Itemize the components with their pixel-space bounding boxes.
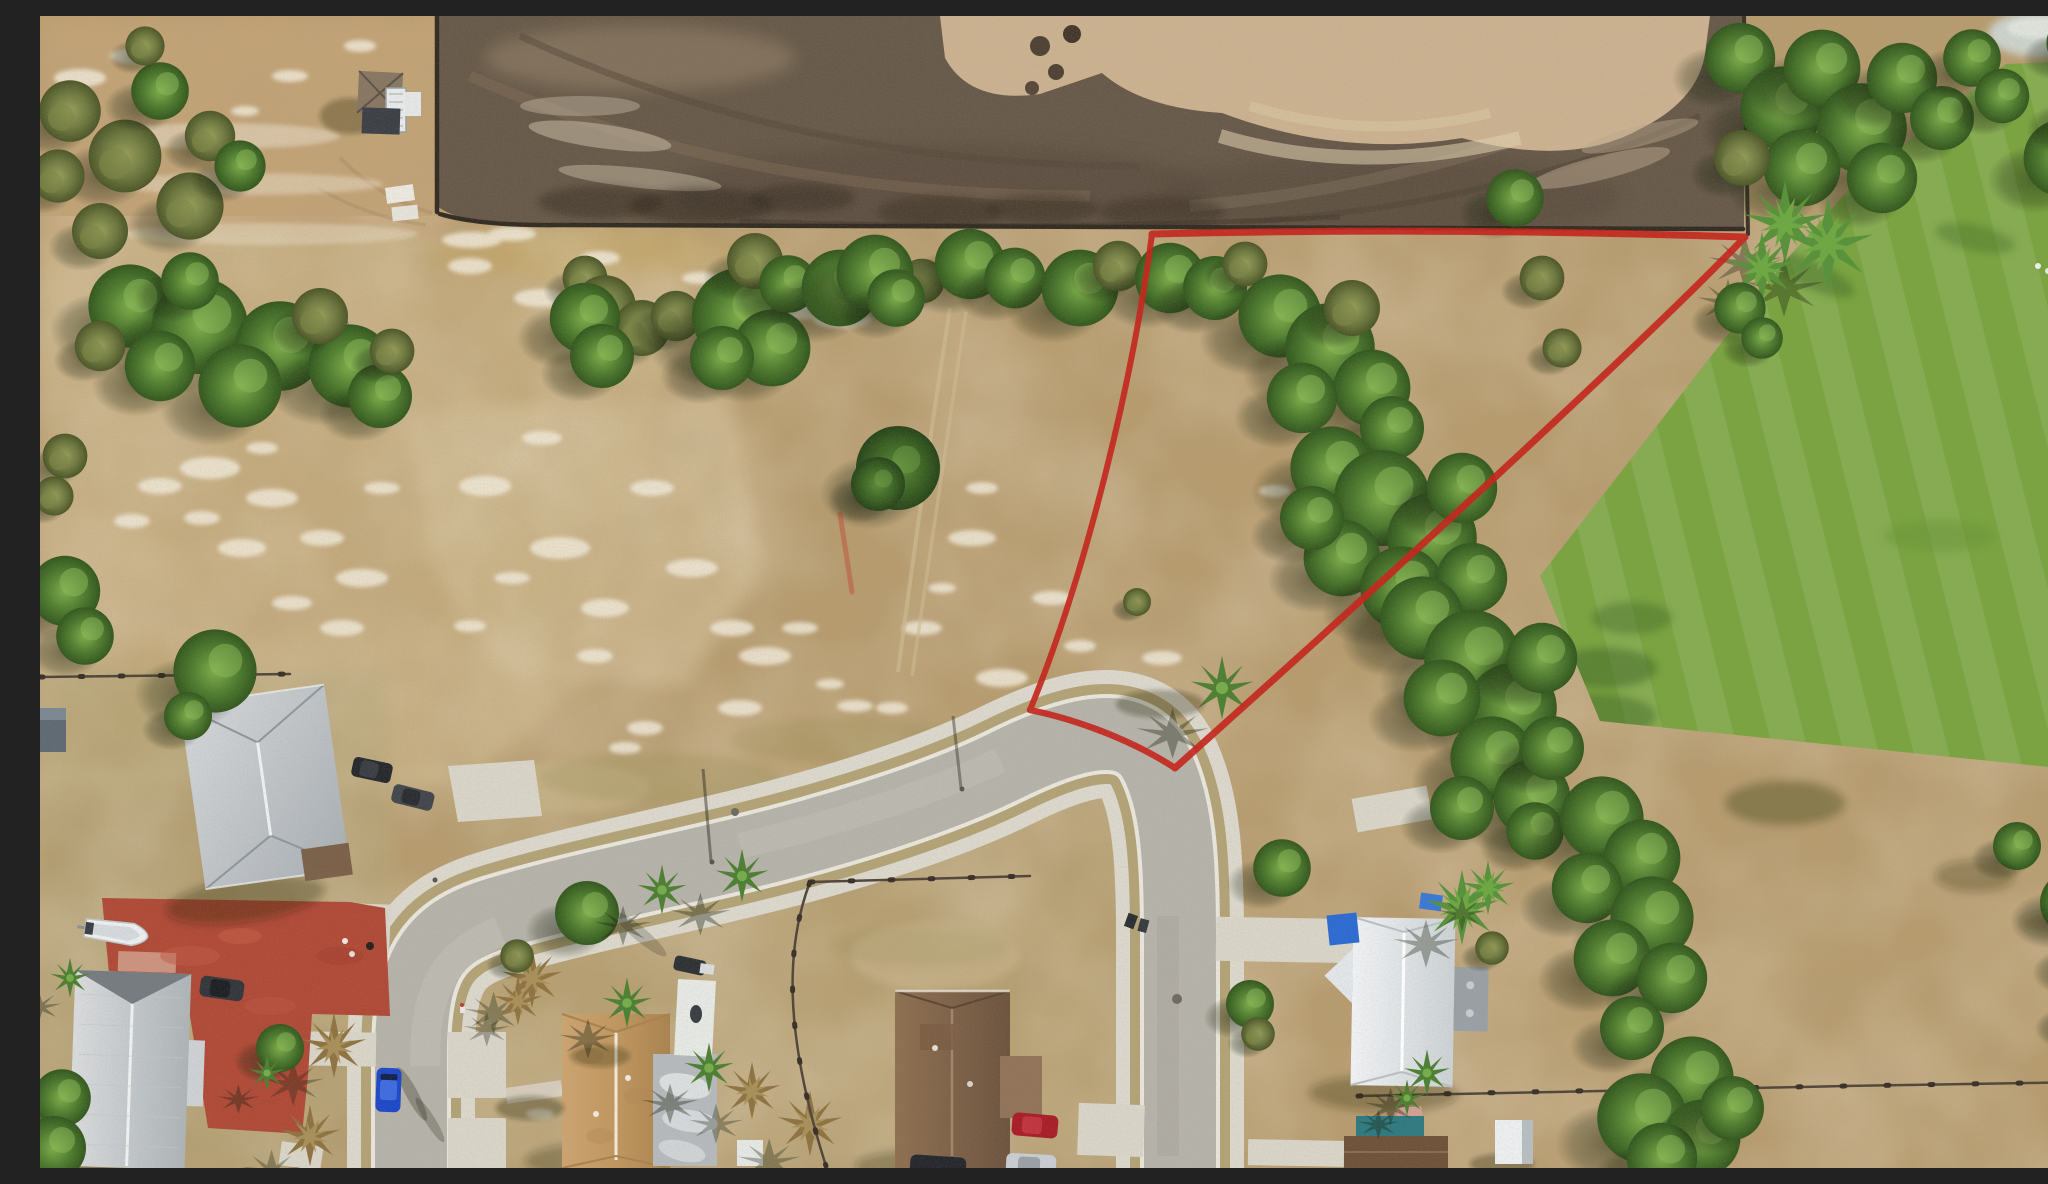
aerial-photo-canvas xyxy=(40,16,2048,1168)
aerial-photo: Aerial drone photo of a vacant residenti… xyxy=(40,16,2048,1168)
photo-grain xyxy=(40,16,2048,1168)
